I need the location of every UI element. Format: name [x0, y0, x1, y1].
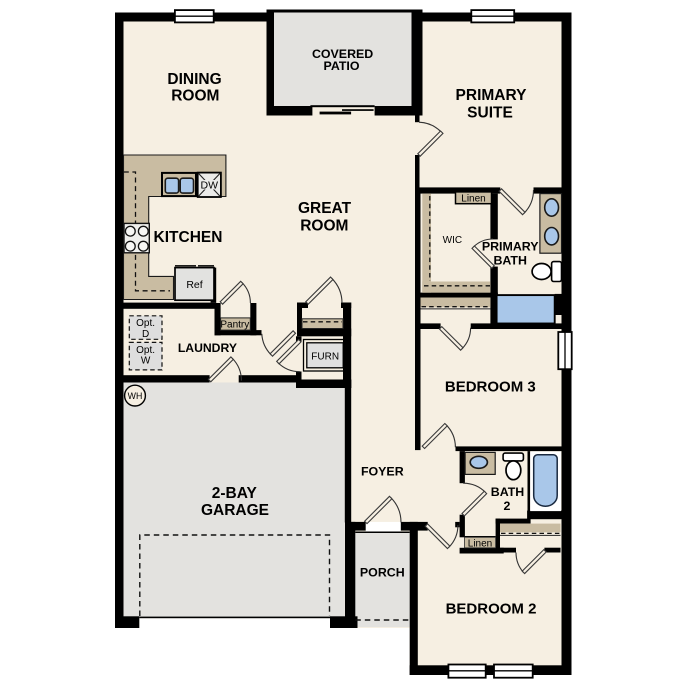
- svg-text:Opt.: Opt.: [136, 318, 155, 329]
- svg-text:W: W: [141, 356, 151, 367]
- svg-text:ROOM: ROOM: [300, 217, 348, 234]
- svg-text:2-BAY: 2-BAY: [212, 485, 258, 502]
- svg-text:KITCHEN: KITCHEN: [154, 229, 223, 246]
- svg-text:GREAT: GREAT: [298, 200, 352, 217]
- svg-text:2: 2: [504, 499, 511, 513]
- svg-text:PATIO: PATIO: [323, 59, 359, 73]
- svg-text:LAUNDRY: LAUNDRY: [178, 341, 237, 355]
- svg-text:SUITE: SUITE: [467, 104, 513, 121]
- svg-text:DW: DW: [201, 180, 219, 192]
- svg-text:PORCH: PORCH: [360, 566, 405, 580]
- svg-text:GARAGE: GARAGE: [201, 502, 269, 519]
- svg-text:WIC: WIC: [443, 235, 462, 246]
- svg-text:Ref: Ref: [186, 279, 202, 291]
- svg-text:PRIMARY: PRIMARY: [482, 240, 539, 254]
- svg-text:Pantry: Pantry: [220, 320, 249, 331]
- svg-text:Linen: Linen: [468, 538, 492, 549]
- svg-text:BATH: BATH: [491, 485, 525, 499]
- svg-text:PRIMARY: PRIMARY: [456, 87, 528, 104]
- svg-text:FURN: FURN: [311, 352, 339, 363]
- svg-text:BATH: BATH: [493, 253, 527, 267]
- svg-text:BEDROOM 2: BEDROOM 2: [446, 600, 537, 617]
- svg-text:FOYER: FOYER: [361, 465, 404, 479]
- svg-text:D: D: [142, 329, 149, 340]
- svg-text:DINING: DINING: [167, 71, 221, 88]
- svg-text:BEDROOM 3: BEDROOM 3: [445, 378, 536, 395]
- svg-text:Opt.: Opt.: [136, 345, 155, 356]
- svg-text:Linen: Linen: [461, 193, 485, 204]
- svg-text:ROOM: ROOM: [171, 88, 219, 105]
- svg-text:WH: WH: [128, 391, 143, 401]
